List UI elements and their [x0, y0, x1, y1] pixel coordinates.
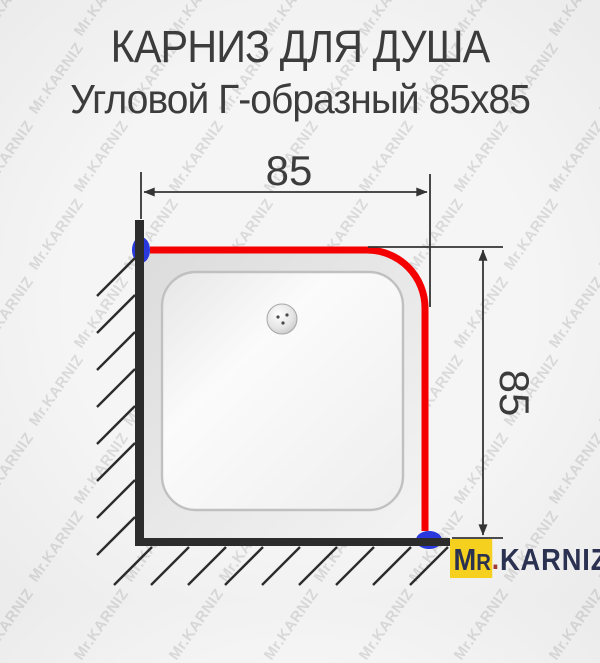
wall-hatching-bottom [114, 547, 448, 585]
page-subtitle: Угловой Г-образный 85х85 [15, 76, 585, 122]
dim-right-label: 85 [491, 370, 538, 417]
header: КАРНИЗ ДЛЯ ДУША Угловой Г-образный 85х85 [0, 0, 600, 122]
wall-left [135, 220, 144, 546]
brand-logo-r: R [476, 551, 491, 574]
brand-logo-dot: . [492, 545, 499, 575]
brand-logo-mr-badge: M R [450, 539, 493, 578]
dim-top-label: 85 [266, 147, 313, 194]
page-title: КАРНИЗ ДЛЯ ДУША [24, 22, 576, 72]
brand-logo-name: KARNIZ [500, 544, 600, 578]
brand-logo-m: M [454, 544, 477, 575]
brand-logo: M R . KARNIZ [450, 539, 600, 578]
drain [267, 304, 297, 334]
wall-bottom [135, 538, 450, 546]
wall-hatching-left [97, 258, 135, 555]
